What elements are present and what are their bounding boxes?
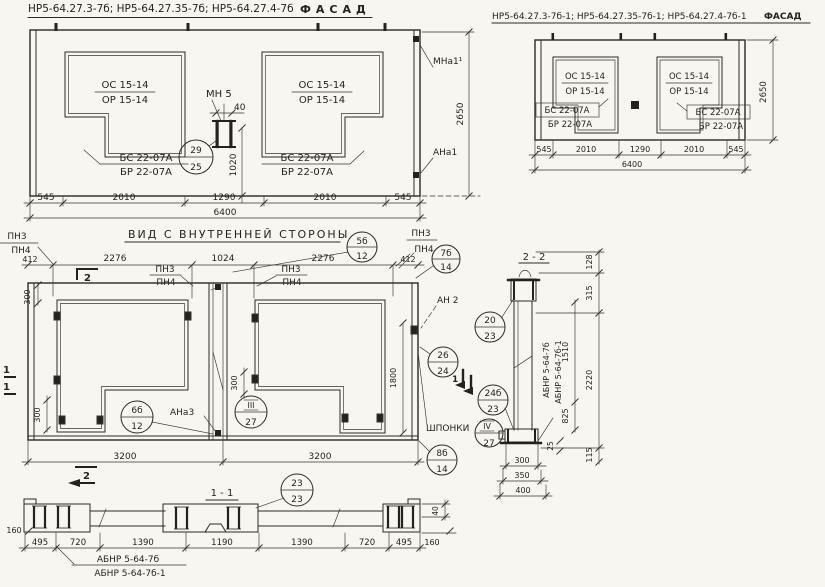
section-1-cut-marker: 1 — [452, 370, 473, 395]
dim-1020: 1020 — [229, 153, 239, 176]
opening1-sash-mark: ОС 15-14 — [565, 72, 605, 82]
section-2-2: 2 - 2 128 315 2220 115 1510 825 25 АБНР … — [494, 249, 604, 500]
dim: 545 — [37, 193, 54, 203]
dim-2650: 2650 — [456, 102, 466, 125]
abnr-mark: АБНР 5-64-7б — [542, 342, 551, 397]
dim: 412 — [400, 255, 415, 264]
callout-top: 7б — [440, 249, 452, 259]
pn3-label: ПН3 — [7, 232, 26, 242]
dim: 2276 — [312, 254, 335, 264]
callout-bottom: 25 — [190, 163, 201, 173]
callout-bottom: 14 — [440, 263, 452, 273]
callout-top: 5б — [356, 237, 368, 247]
dim: 3200 — [114, 452, 137, 462]
abnr1-mark: АБНР 5-64-7б-1 — [94, 569, 165, 579]
an2-label: АН 2 — [437, 296, 459, 306]
callout-top: III — [247, 401, 254, 410]
section-2-number: 2 — [83, 471, 90, 482]
dim: 1190 — [211, 538, 233, 548]
callout-bottom: 24 — [437, 367, 449, 377]
sill1-top-mark: БС 22-07А — [545, 106, 590, 116]
opening1-frame-mark: ОР 15-14 — [565, 87, 604, 97]
callout-bottom: 23 — [484, 332, 495, 342]
section-2-bottom-dims: 300 350 400 — [494, 444, 552, 500]
section-1-cut-marker-left: 1 1 — [3, 365, 15, 394]
section-1-dim-chain: 495 720 1390 1190 1390 720 495 — [19, 533, 426, 552]
dim: 2220 — [585, 370, 594, 390]
callout-top: 29 — [190, 146, 202, 156]
opening2-frame-mark: ОР 15-14 — [299, 95, 345, 106]
dim: 2276 — [104, 254, 127, 264]
callout-bottom: 14 — [436, 465, 448, 475]
pn3-label: ПН3 — [281, 265, 300, 275]
section-1-title: 1 - 1 — [211, 488, 234, 499]
sill2-bottom-mark: БР 22-07А — [699, 122, 743, 132]
pn4-label: ПН4 — [414, 245, 434, 255]
facade-left-title: НР5-64.27.3-7б; НР5-64.27.35-7б; НР5-64.… — [28, 3, 294, 15]
callout-23-23: 23 23 — [256, 474, 313, 508]
inner-side-view: ВИД С ВНУТРЕННЕЙ СТОРОНЫ 5б 12 ПН3 ПН4 П… — [0, 228, 513, 487]
dim: 1024 — [212, 254, 235, 264]
dim-160-left: 160 — [6, 526, 21, 535]
mn5-label: МН 5 — [206, 89, 232, 100]
abnr1-mark: АБНР 5-64-7б-1 — [554, 340, 563, 403]
facade-left-view: НР5-64.27.3-7б; НР5-64.27.35-7б; НР5-64.… — [24, 3, 480, 222]
blueprint-sheet: НР5-64.27.3-7б; НР5-64.27.35-7б; НР5-64.… — [0, 0, 825, 587]
mn5-anchor-icon: МН 5 40 — [206, 89, 246, 147]
dim-40: 40 — [431, 506, 440, 516]
dim: 495 — [396, 538, 412, 548]
section-2-number: 2 — [84, 273, 91, 284]
shponki-label: ШПОНКИ — [426, 424, 469, 434]
dim-160-right: 160 — [424, 538, 439, 547]
dim: 128 — [585, 254, 594, 269]
dim: 545 — [536, 145, 551, 154]
dim-total: 6400 — [214, 208, 237, 218]
opening2-sash-mark: ОС 15-14 — [669, 72, 709, 82]
section-2-title: 2 - 2 — [523, 252, 546, 263]
dim: 2010 — [113, 193, 136, 203]
drawing-canvas: НР5-64.27.3-7б; НР5-64.27.35-7б; НР5-64.… — [0, 0, 825, 587]
dim: 545 — [728, 145, 743, 154]
facade-left-view-label: ФАСАД — [300, 3, 371, 16]
callout-top: 8б — [436, 449, 448, 459]
dim-1800: 1800 — [389, 368, 398, 388]
opening1-frame-mark: ОР 15-14 — [102, 95, 148, 106]
dim: 545 — [394, 193, 411, 203]
facade-left-dim-chain: 545 2010 1290 2010 545 6400 — [24, 193, 426, 222]
dim: 1290 — [630, 145, 650, 154]
pn3-label: ПН3 — [155, 265, 174, 275]
dim: 412 — [22, 255, 37, 264]
callout-top: 26 — [437, 351, 449, 361]
sill2-bottom-mark: БР 22-07А — [281, 167, 333, 178]
abnr-mark: АБНР 5-64-7б — [97, 555, 160, 565]
dim: 2010 — [314, 193, 337, 203]
opening2-sash-mark: ОС 15-14 — [298, 80, 345, 91]
section-2-cut-marker-top: 2 — [77, 269, 97, 284]
callout-III-27: III 27 — [235, 396, 267, 428]
dim: 720 — [70, 538, 86, 548]
sill2-top-mark: БС 22-07А — [696, 108, 741, 118]
sill1-top-mark: БС 22-07А — [120, 153, 173, 164]
dim-total: 6400 — [622, 160, 642, 169]
section-1-1: 1 - 1 23 23 160 40 160 495 720 — [6, 474, 456, 579]
ana1-label: АНа1 — [433, 148, 457, 158]
section-2-cut-marker-bottom: 2 — [68, 467, 96, 487]
dim: 400 — [515, 486, 530, 495]
callout-top: 24б — [484, 389, 501, 399]
dim: 315 — [585, 285, 594, 300]
callout-8b-14: 8б 14 — [419, 441, 457, 475]
facade-right-title: НР5-64.27.3-7б-1; НР5-64.27.35-7б-1; НР5… — [492, 12, 747, 22]
callout-bottom: 27 — [483, 439, 494, 449]
dim-300: 300 — [33, 407, 42, 422]
callout-top: 6б — [131, 406, 143, 416]
dim: 825 — [561, 408, 570, 423]
facade-right-view: НР5-64.27.3-7б-1; НР5-64.27.35-7б-1; НР5… — [492, 12, 810, 174]
section-1-number: 1 — [3, 365, 10, 376]
callout-bottom: 12 — [131, 422, 142, 432]
callout-bottom: 23 — [291, 495, 302, 505]
dim-2650: 2650 — [759, 81, 769, 103]
callout-bottom: 12 — [356, 252, 367, 262]
sill1-bottom-mark: БР 22-07А — [120, 167, 172, 178]
dim: 1390 — [132, 538, 154, 548]
callout-top: 23 — [291, 479, 302, 489]
inner-view-title: ВИД С ВНУТРЕННЕЙ СТОРОНЫ — [128, 228, 349, 241]
pn3-label: ПН3 — [411, 229, 430, 239]
callout-top: 20 — [484, 316, 496, 326]
inner-view-bottom-dims: 3200 3200 — [22, 441, 424, 466]
dim: 350 — [514, 471, 529, 480]
mna1-label: МНа1¹ — [433, 57, 463, 67]
sill2-top-mark: БС 22-07А — [281, 153, 334, 164]
dim-300: 300 — [230, 375, 239, 390]
section-1-number: 1 — [452, 375, 458, 385]
callout-top: IV — [483, 422, 491, 431]
dim: 1390 — [291, 538, 313, 548]
dim: 720 — [359, 538, 375, 548]
opening2-frame-mark: ОР 15-14 — [669, 87, 708, 97]
facade-right-view-label: ФАСАД — [764, 12, 801, 22]
callout-20-23: 20 23 — [475, 300, 513, 342]
lifting-loop-icon — [552, 33, 728, 109]
section-1-number: 1 — [3, 382, 10, 393]
callout-bottom: 23 — [487, 405, 498, 415]
dim: 25 — [546, 441, 555, 451]
callout-bottom: 27 — [245, 418, 256, 428]
opening1-sash-mark: ОС 15-14 — [101, 80, 148, 91]
callout-26-24: 26 24 — [420, 347, 458, 377]
ana3-label: АНа3 — [170, 408, 194, 418]
dim: 115 — [585, 447, 594, 462]
mn5-width-dim: 40 — [234, 103, 246, 113]
dim: 3200 — [309, 452, 332, 462]
dim: 300 — [514, 456, 529, 465]
dim: 2010 — [684, 145, 704, 154]
dim: 2010 — [576, 145, 596, 154]
dim: 1290 — [213, 193, 236, 203]
dim-300: 300 — [23, 289, 32, 304]
sill1-bottom-mark: БР 22-07А — [548, 120, 592, 130]
facade-right-dim-chain: 545 2010 1290 2010 545 6400 — [529, 141, 751, 174]
dim: 495 — [32, 538, 48, 548]
callout-6b-12: 6б 12 — [121, 401, 213, 434]
